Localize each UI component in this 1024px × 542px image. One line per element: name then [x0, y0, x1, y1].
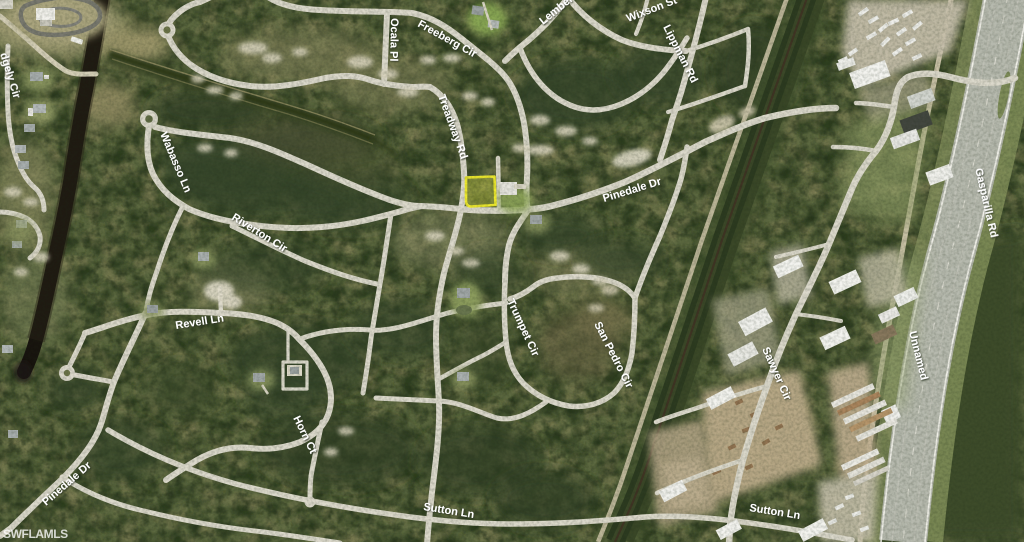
svg-text:Ocala Pl: Ocala Pl	[387, 18, 400, 62]
svg-text:SWFLAMLS: SWFLAMLS	[3, 527, 68, 541]
